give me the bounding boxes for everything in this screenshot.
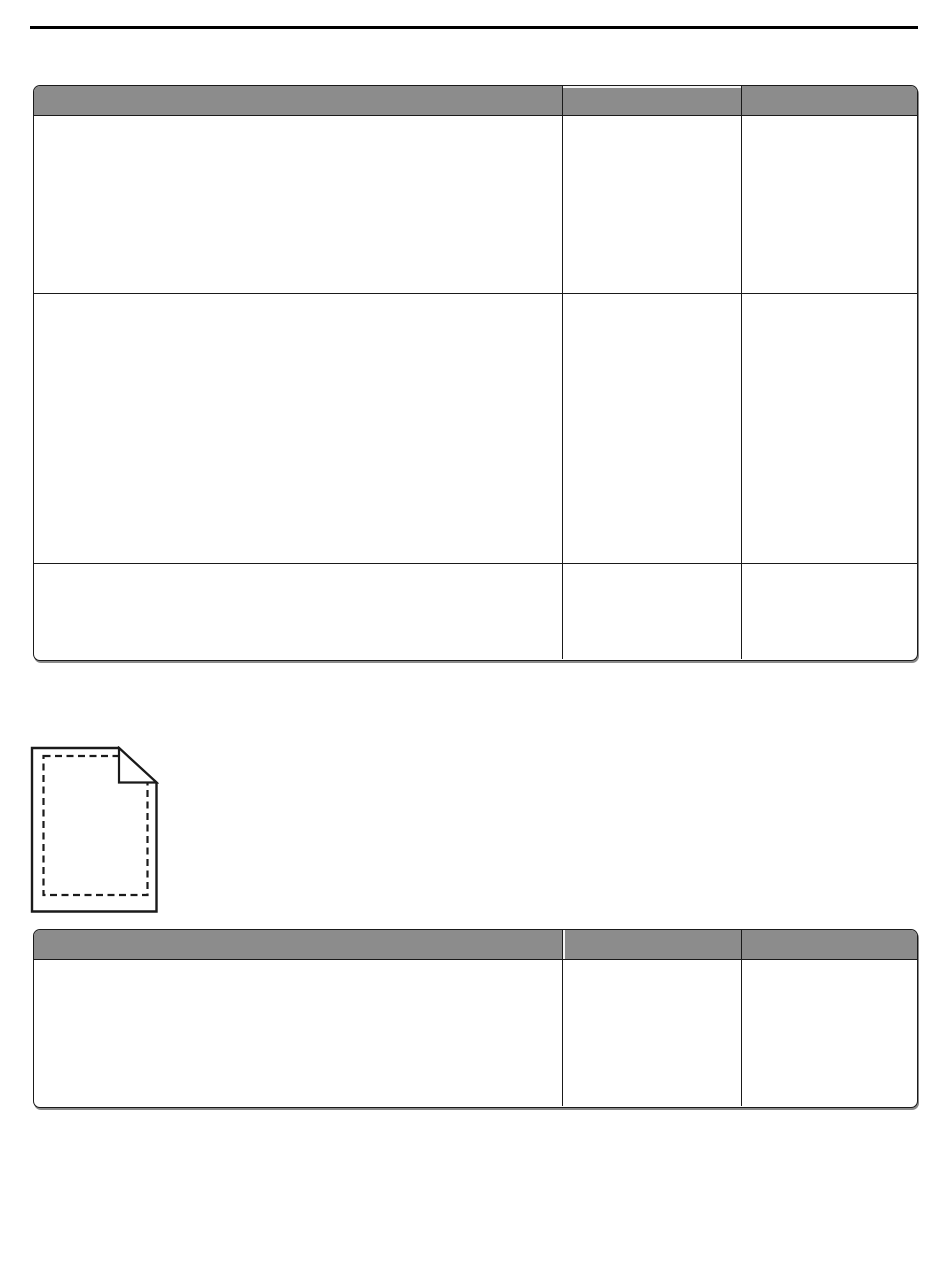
table-cell: [34, 116, 562, 293]
table-2: [33, 929, 918, 1108]
table-cell: [741, 294, 917, 563]
table-row: [34, 116, 917, 293]
table-row: [34, 563, 917, 659]
table-cell: [34, 960, 562, 1106]
reference-link[interactable]: [747, 608, 874, 631]
page-top-rule: [30, 26, 918, 29]
table-cell: [741, 116, 917, 293]
table-cell: [34, 564, 562, 659]
table-cell: [562, 116, 741, 293]
table-cell: [741, 960, 917, 1106]
table-cell: [741, 564, 917, 659]
table-1: [33, 85, 918, 661]
table-cell: [34, 294, 562, 563]
table-2-header-cell-1: [34, 930, 562, 959]
table-2-header-cell-2: [562, 930, 741, 959]
table-cell: [562, 960, 741, 1106]
table-row: [34, 293, 917, 563]
table-1-header-cell-1: [34, 86, 562, 115]
page-icon: [30, 746, 159, 914]
table-2-header-row: [34, 930, 917, 960]
table-row: [34, 960, 917, 1106]
document-page: [0, 0, 950, 1267]
table-cell: [562, 294, 741, 563]
table-1-header-cell-3: [741, 86, 917, 115]
table-1-header-row: [34, 86, 917, 116]
table-cell: [562, 564, 741, 659]
table-1-header-cell-2: [562, 86, 741, 115]
table-2-header-cell-3: [741, 930, 917, 959]
